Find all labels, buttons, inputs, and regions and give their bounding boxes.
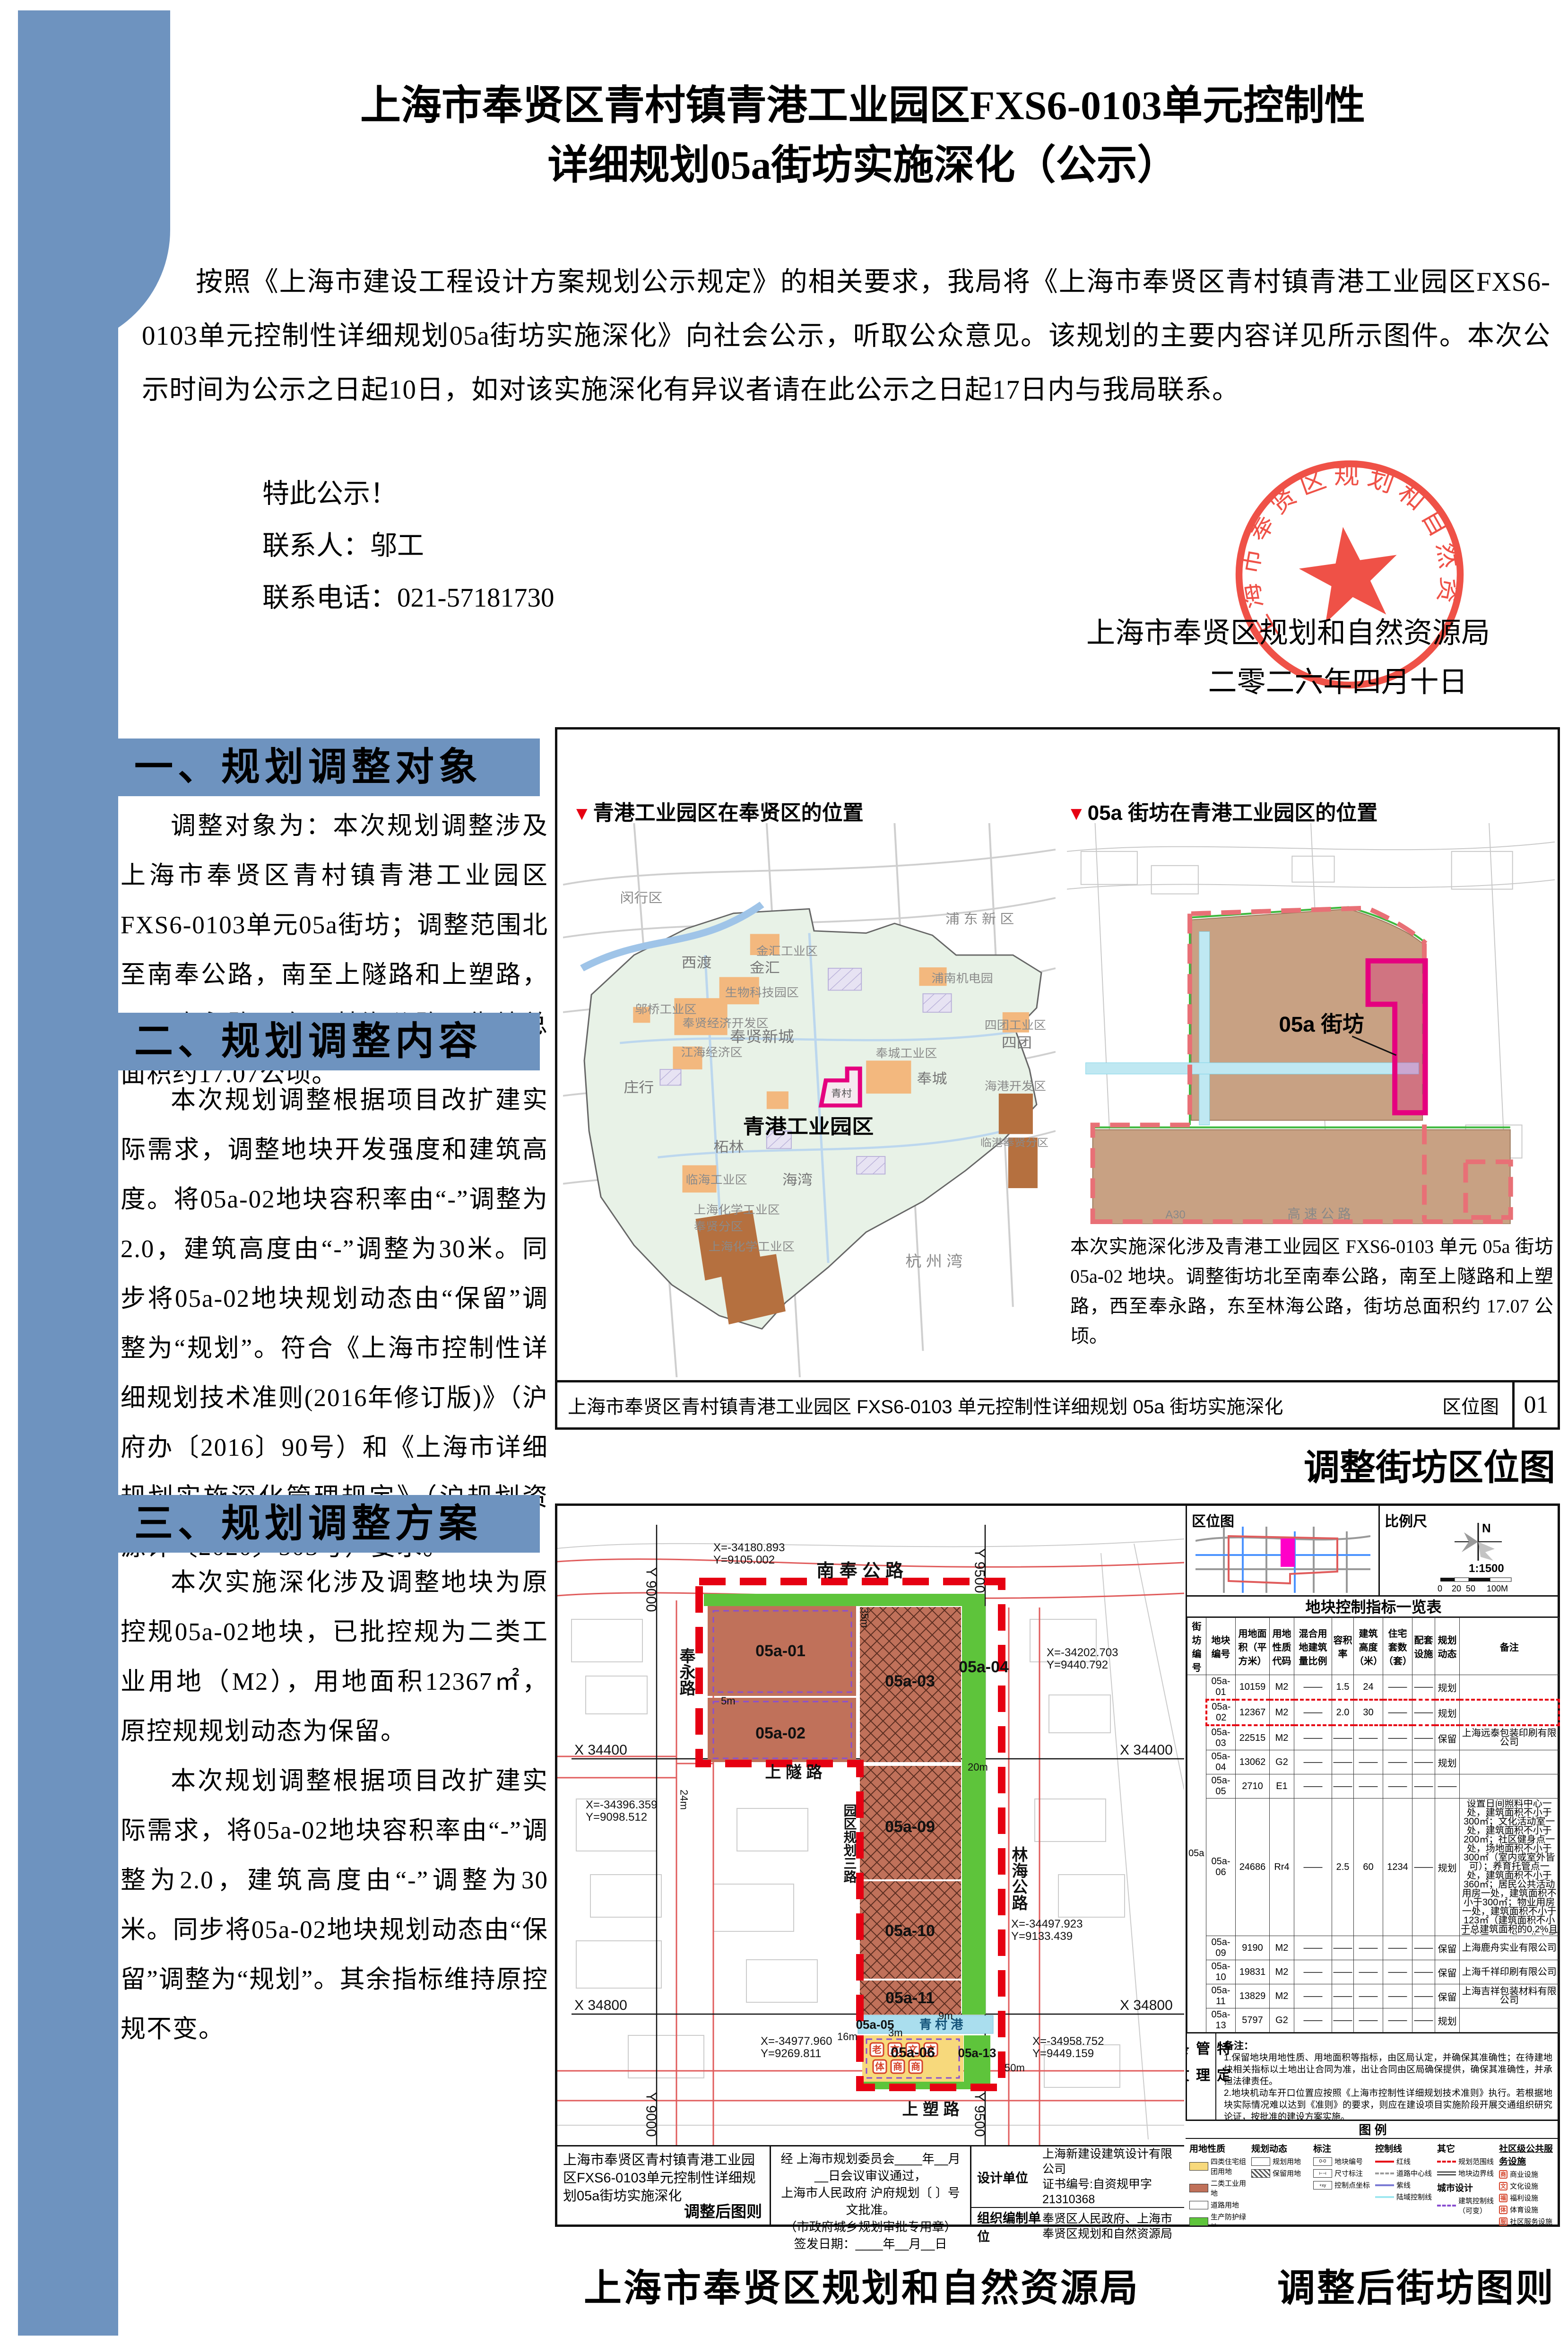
map1-caption: 调整街坊区位图: [1182, 1438, 1555, 1490]
coord-symbol: +xy: [1313, 2181, 1332, 2190]
scale-tick: 20: [1452, 1584, 1461, 1593]
legend-group-title: 其它: [1437, 2142, 1494, 2155]
cell: 保留: [1435, 1725, 1460, 1750]
cell: 60: [1354, 1799, 1383, 1936]
facility-icon: 商: [893, 2061, 902, 2072]
swatch-s1: [1189, 2201, 1208, 2209]
legend-label: 二类工业用地: [1211, 2178, 1247, 2198]
cell: ——: [1294, 1725, 1332, 1750]
table-row: 05a-1113829M2——————————保留上海吉祥包装材料有限公司: [1187, 1984, 1559, 2008]
map-label: 庄行: [624, 1079, 654, 1095]
coord-callout: X=-34202.703: [1047, 1646, 1118, 1659]
cell: 19831: [1236, 1960, 1270, 1984]
map1-caption-left: ▼ 青港工业园区在奉贤区的位置: [572, 796, 864, 826]
remark-text: 设置日间照料中心一处，建筑面积不小于300㎡；文化活动室一处，建筑面积不小于20…: [1460, 1799, 1559, 1935]
culture-facility-icon: 文: [1499, 2182, 1507, 2190]
table-row-highlighted: 05a-0212367M2——2.030————规划: [1187, 1700, 1559, 1725]
cell: ——: [1383, 1960, 1412, 1984]
parcel-label: 05a-02: [755, 1724, 806, 1742]
legend-label: 陆域控制线: [1396, 2192, 1432, 2202]
map1-titlebar-sheet: 区位图: [1418, 1391, 1512, 1419]
cell: ——: [1383, 2008, 1412, 2033]
cell: ——: [1294, 1936, 1332, 1960]
table-row: 05a-0413062G2——————————规划: [1187, 1750, 1559, 1774]
parcel-id-symbol: 0-0: [1313, 2157, 1332, 2166]
legend-label: 尺寸标注: [1334, 2168, 1363, 2178]
cell: M2: [1270, 1725, 1294, 1750]
cell: ——: [1383, 1700, 1412, 1725]
cell: ——: [1383, 1750, 1412, 1774]
legend-body: 用地性质 四类住宅组团用地 二类工业用地 道路用地 生产防护绿地 水域 规划动态…: [1186, 2139, 1560, 2227]
map-label: 邬桥工业区: [635, 1003, 696, 1016]
centerline-symbol: [1375, 2172, 1394, 2174]
map-label: 奉贤分区: [694, 1220, 743, 1233]
cell: ——: [1332, 1960, 1354, 1984]
cell: ——: [1412, 1675, 1435, 1700]
map-label: 上海化学工业区: [709, 1241, 795, 1253]
grid-label: Y 9500: [972, 2092, 988, 2137]
titleblock-approval-cell: 经 上海市规划委员会____年__月__日会议审议通过， 上海市人民政府 沪府规…: [771, 2146, 971, 2225]
cell: 上海远泰包装印刷有限公司: [1460, 1725, 1559, 1750]
titleblock-sheet: 调整后图则: [684, 2203, 762, 2221]
green-buffer-top: [704, 1594, 985, 1606]
coord-callout: Y=9098.512: [586, 1811, 647, 1824]
cell: ——: [1332, 1984, 1354, 2008]
facility-icon: 商: [911, 2061, 920, 2072]
legend-label: 地块边界线: [1458, 2168, 1494, 2178]
cell: ——: [1354, 1936, 1383, 1960]
signature-date: 二零二六年四月十日: [1158, 658, 1517, 700]
special-provisions: 特定管理条文 备注： 1.保留地块用地性质、用地面积等指标，由区局认定，并确保其…: [1187, 2033, 1560, 2120]
table-row: 05a-1019831M2——————————保留上海千祥印刷有限公司: [1187, 1960, 1559, 1984]
approval-line: 上海市人民政府 沪府规划〔 〕号文批准。: [776, 2184, 965, 2218]
block-plan-map: 老 文 文 文 体 商 商 05a-01 05a-02 05a: [557, 1506, 1184, 2145]
legend-label: 文化设施: [1510, 2181, 1538, 2191]
road-label-fengyong: 奉永路: [677, 1648, 695, 1696]
cell: M2: [1270, 1936, 1294, 1960]
dim-label: 24m: [678, 1790, 690, 1810]
map-label: 金汇工业区: [756, 945, 818, 958]
cell: E1: [1270, 1774, 1294, 1799]
legend-group-title: 用地性质: [1189, 2142, 1247, 2155]
grid-label: X 34400: [1120, 1742, 1173, 1758]
cell: ——: [1412, 1750, 1435, 1774]
block-05a-label: 05a 街坊: [1279, 1012, 1364, 1036]
cell: 保留: [1435, 1936, 1460, 1960]
map2-right-panel: 区位图 比例尺 N: [1186, 1506, 1560, 2120]
cell: ——: [1354, 1750, 1383, 1774]
coord-callout: Y=9133.439: [1011, 1930, 1073, 1943]
coord-callout: X=-34180.893: [713, 1541, 785, 1554]
cell: ——: [1383, 1774, 1412, 1799]
commercial-facility-icon: 商: [1499, 2170, 1507, 2179]
block-location-map: 05a 街坊 A30 高 速 公 路: [1067, 823, 1555, 1224]
legend-label: 商业设施: [1510, 2169, 1538, 2179]
design-unit-label: 设计单位: [971, 2168, 1042, 2186]
legend-label: 社区服务设施: [1510, 2216, 1552, 2226]
dim-label: 3m: [888, 2027, 903, 2039]
col-header: 用地性质代码: [1270, 1618, 1294, 1675]
map1-caption-right: ▼ 05a 街坊在青港工业园区的位置: [1067, 796, 1377, 826]
signature-org: 上海市奉贤区规划和自然资源局: [1031, 609, 1546, 651]
legend-dynamics: 规划动态 规划用地 保留用地: [1251, 2142, 1308, 2227]
grid-label: X 34800: [1120, 1998, 1173, 2013]
parcel-label: 05a-09: [885, 1818, 935, 1836]
cell: ——: [1294, 1960, 1332, 1984]
cell: 13062: [1236, 1750, 1270, 1774]
col-header: 规划动态: [1435, 1618, 1460, 1675]
buildingcontrol-symbol: [1437, 2205, 1456, 2207]
road-label-linhai: 林海公路: [1009, 1846, 1028, 1911]
org-unit-label: 组织编制单位: [971, 2208, 1042, 2245]
swatch-plan: [1251, 2157, 1270, 2166]
map2-frame: 老 文 文 文 体 商 商 05a-01 05a-02 05a: [555, 1503, 1560, 2227]
cell: [1460, 1750, 1559, 1774]
cell: ——: [1354, 1960, 1383, 1984]
coord-callout: Y=9269.811: [761, 2047, 821, 2060]
map-label: 杭 州 湾: [905, 1253, 962, 1270]
design-unit-cert: 证书编号:自资规甲字21310368: [1042, 2177, 1181, 2207]
legend-label: 生产防护绿地: [1211, 2212, 1247, 2227]
page-title: 上海市奉贤区青村镇青港工业园区FXS6-0103单元控制性 详细规划05a街坊实…: [180, 76, 1546, 195]
map-label: 海湾: [782, 1172, 813, 1188]
redline-symbol: [1375, 2161, 1394, 2163]
block-no-cell: 05a: [1187, 1675, 1206, 2033]
cell: Rr4: [1270, 1799, 1294, 1936]
map-label: 奉贤新城: [730, 1028, 794, 1045]
cell: M2: [1270, 1960, 1294, 1984]
table-title: 地块控制指标一览表: [1187, 1597, 1560, 1617]
legend-title: 图 例: [1186, 2121, 1560, 2139]
col-header: 住宅套数（套）: [1383, 1618, 1412, 1675]
legend-label: 规划用地: [1273, 2156, 1301, 2166]
qinggang-park-label: 青港工业园区: [743, 1116, 874, 1138]
map-label: 临海工业区: [685, 1174, 747, 1187]
cell: ——: [1332, 1774, 1354, 1799]
cell: 5797: [1236, 2008, 1270, 2033]
map-label: 闵行区: [620, 890, 662, 905]
map-label: 柘林: [714, 1139, 744, 1155]
parcel-label: 05a-13: [958, 2046, 996, 2060]
scale-graphics: N 1:1500 0 20 50 100M: [1384, 1523, 1554, 1594]
legend-box: 图 例 用地性质 四类住宅组团用地 二类工业用地 道路用地 生产防护绿地 水域 …: [1186, 2120, 1560, 2227]
road-label-yuanqu3: 园区规划三路: [842, 1804, 857, 1883]
cell: 规划: [1435, 2008, 1460, 2033]
scale-ratio: 1:1500: [1469, 1562, 1504, 1575]
cell: ——: [1383, 1936, 1412, 1960]
map-label: 四团工业区: [985, 1019, 1046, 1032]
cell: 24686: [1236, 1799, 1270, 1936]
map-label: 奉城工业区: [875, 1047, 937, 1060]
swatch-rr4: [1189, 2162, 1208, 2171]
cell: 05a-03: [1206, 1725, 1236, 1750]
cell: M2: [1270, 1675, 1294, 1700]
cell: ——: [1294, 1774, 1332, 1799]
cell: ——: [1332, 1936, 1354, 1960]
legend-group-title: 规划动态: [1251, 2142, 1308, 2155]
cell-remark-05a06: 设置日间照料中心一处，建筑面积不小于300㎡；文化活动室一处，建筑面积不小于20…: [1460, 1799, 1559, 1936]
cell: 2710: [1236, 1774, 1270, 1799]
left-accent-bar: [18, 10, 118, 2336]
grid-label: Y 9000: [643, 1567, 659, 1612]
expressway-name: 高 速 公 路: [1287, 1207, 1351, 1221]
inset-highlight: [1281, 1538, 1295, 1567]
notice-line: 特此公示！: [262, 468, 554, 520]
map-label: 浦 东 新 区: [945, 912, 1014, 927]
coord-callout: X=-34396.359: [586, 1799, 657, 1811]
map-label: 海港开发区: [985, 1080, 1046, 1093]
legend-annotation: 标注 0-0地块编号 ⊢⊣尺寸标注 +xy控制点坐标: [1313, 2142, 1370, 2227]
cell: 12367: [1236, 1700, 1270, 1725]
table-row: 05a-0624686Rr4——2.5601234——规划设置日间照料中心一处，…: [1187, 1799, 1559, 1936]
cell: [1460, 2008, 1559, 2033]
cell: ——: [1354, 2008, 1383, 2033]
scale-tick: 50: [1466, 1584, 1475, 1593]
dim-label: 5m: [721, 1695, 736, 1707]
cell: 24: [1354, 1675, 1383, 1700]
titleblock-project: 上海市奉贤区青村镇青港工业园区FXS6-0103单元控制性详细规划05a街坊实施…: [563, 2151, 764, 2205]
special-provisions-side-label: 特定管理条文: [1187, 2033, 1216, 2120]
approval-line: 签发日期：____年__月__日: [776, 2235, 965, 2252]
col-header: 容积率: [1332, 1618, 1354, 1675]
map-label: 江海经济区: [681, 1046, 742, 1059]
coord-callout: X=-34958.752: [1032, 2035, 1104, 2048]
cell: ——: [1294, 1700, 1332, 1725]
cell: ——: [1412, 1725, 1435, 1750]
cell: 规划: [1435, 1799, 1460, 1936]
sports-facility-icon: 体: [1499, 2206, 1507, 2214]
coord-callout: X=-34977.960: [761, 2035, 832, 2048]
road-label-nanfeng: 南 奉 公 路: [816, 1561, 904, 1581]
page-title-line2: 详细规划05a街坊实施深化（公示）: [180, 135, 1546, 195]
page-title-line1: 上海市奉贤区青村镇青港工业园区FXS6-0103单元控制性: [180, 76, 1546, 135]
cell: ——: [1383, 1725, 1412, 1750]
grid-label: X 34800: [574, 1998, 627, 2013]
cell: ——: [1412, 1984, 1435, 2008]
expressway-label: A30: [1165, 1208, 1185, 1221]
titleblock-project-cell: 上海市奉贤区青村镇青港工业园区FXS6-0103单元控制性详细规划05a街坊实施…: [557, 2146, 771, 2225]
cell: [1460, 1774, 1559, 1799]
cell: M2: [1270, 1700, 1294, 1725]
map-label: 临港奉贤分区: [980, 1137, 1048, 1148]
coord-callout: Y=9440.792: [1047, 1659, 1108, 1671]
cell: 1234: [1383, 1799, 1412, 1936]
dim-label: 9m: [938, 2010, 953, 2022]
legend-label: 规划范围线: [1458, 2156, 1494, 2166]
cell: [1460, 1675, 1559, 1700]
triangle-marker-icon: ▼: [572, 803, 591, 824]
dim-label: 20m: [968, 1761, 988, 1773]
map1-caption-left-text: 青港工业园区在奉贤区的位置: [593, 801, 864, 825]
legend-group-title: 控制线: [1375, 2142, 1432, 2155]
swatch-g2: [1189, 2217, 1208, 2226]
section1-heading: 一、规划调整对象: [118, 739, 540, 796]
cell: 保留: [1435, 1984, 1460, 2008]
contact-phone: 联系电话：021-57181730: [262, 572, 554, 624]
legend-group-title: 社区级公共服务设施: [1499, 2142, 1556, 2167]
triangle-marker-icon: ▼: [1067, 803, 1086, 824]
district-map: 闵行区 浦 东 新 区 西渡 金汇工业区 金汇 浦南机电园 生物科技园区 邬桥工…: [563, 823, 1056, 1377]
legend-label: 福利设施: [1510, 2193, 1538, 2203]
cell: 05a-13: [1206, 2008, 1236, 2033]
legend-label: 紫线: [1396, 2180, 1411, 2190]
legend-facilities: 社区级公共服务设施 商商业设施 文文化设施 福福利设施 体体育设施 服社区服务设…: [1499, 2142, 1556, 2227]
note-item: 2.地块机动车开口位置应按照《上海市控制性详细规划技术准则》执行。若根据地块实际…: [1224, 2087, 1552, 2120]
cell: 30: [1354, 1700, 1383, 1725]
cell: 规划: [1435, 1750, 1460, 1774]
parcel-label: 05a-10: [885, 1922, 935, 1940]
legend-label: 红线: [1396, 2156, 1411, 2166]
cell: ——: [1354, 1774, 1383, 1799]
map-label: 四团: [1002, 1034, 1032, 1051]
cell: ——: [1412, 1700, 1435, 1725]
cell: 05a-05: [1206, 1774, 1236, 1799]
map2-top-boxes: 区位图 比例尺 N: [1187, 1506, 1560, 1597]
cell: ——: [1412, 1799, 1435, 1936]
cell: G2: [1270, 2008, 1294, 2033]
map-label: 金汇: [750, 960, 780, 976]
section3-paragraph1: 本次实施深化涉及调整地块为原控规05a-02地块，已批控规为二类工业用地（M2）…: [121, 1558, 548, 1756]
scale-box: 比例尺 N 1:1500 0 20 50: [1380, 1506, 1560, 1595]
parcelboundary-symbol: [1437, 2172, 1456, 2175]
cell: 05a-09: [1206, 1936, 1236, 1960]
grid-label: Y 9000: [643, 2092, 659, 2137]
design-unit-value: 上海新建设建筑设计有限公司 证书编号:自资规甲字21310368: [1042, 2146, 1184, 2207]
purpleline-symbol: [1375, 2184, 1394, 2186]
section3-paragraph2: 本次规划调整根据项目改扩建实际需求，将05a-02地块容积率由“-”调整为2.0…: [121, 1756, 548, 2054]
map1-caption-right-text: 05a 街坊在青港工业园区的位置: [1088, 801, 1378, 825]
coord-callout: Y=9105.002: [713, 1554, 775, 1566]
col-header: 街坊编号: [1187, 1618, 1206, 1675]
table-row: 05a-135797G2——————————规划: [1187, 2008, 1559, 2033]
cell: 05a-02: [1206, 1700, 1236, 1725]
legend-label: 控制点坐标: [1334, 2180, 1370, 2190]
map1-note: 本次实施深化涉及青港工业园区 FXS6-0103 单元 05a 街坊 05a-0…: [1070, 1232, 1553, 1351]
cell: 1.5: [1332, 1675, 1354, 1700]
intro-paragraph: 按照《上海市建设工程设计方案规划公示规定》的相关要求，我局将《上海市奉贤区青村镇…: [142, 255, 1551, 417]
col-header: 混合用地建筑量比例: [1294, 1618, 1332, 1675]
cell: [1460, 1700, 1559, 1725]
cell: 05a-10: [1206, 1960, 1236, 1984]
coord-callout: X=-34497.923: [1011, 1918, 1083, 1930]
section3-heading: 三、规划调整方案: [118, 1495, 540, 1553]
map1-frame: ▼ 青港工业园区在奉贤区的位置 ▼ 05a 街坊在青港工业园区的位置: [555, 727, 1560, 1430]
scale-tick: 100M: [1487, 1584, 1508, 1593]
legend-label: 四类住宅组团用地: [1211, 2156, 1247, 2176]
cell: 上海鹿舟实业有限公司: [1460, 1936, 1559, 1960]
legend-controls: 控制线 红线 道路中心线 紫线 陆域控制线: [1375, 2142, 1432, 2227]
cell: ——: [1383, 1984, 1412, 2008]
org-unit-row: 组织编制单位 奉贤区人民政府、上海市奉贤区规划和自然资源局: [971, 2207, 1184, 2245]
section2-heading: 二、规划调整内容: [118, 1013, 540, 1070]
cell: 规划: [1435, 1675, 1460, 1700]
approval-line: 经 上海市规划委员会____年__月__日会议审议通过，: [776, 2150, 965, 2184]
dim-symbol: ⊢⊣: [1313, 2169, 1332, 2178]
map2-titleblock: 上海市奉贤区青村镇青港工业园区FXS6-0103单元控制性详细规划05a街坊实施…: [557, 2145, 1184, 2225]
legend-label: 道路用地: [1211, 2200, 1239, 2210]
bottom-caption-left: 上海市奉贤区规划和自然资源局: [584, 2258, 1140, 2312]
north-label: N: [1482, 1523, 1491, 1535]
cell: ——: [1332, 2008, 1354, 2033]
cell: ——: [1412, 1936, 1435, 1960]
col-header: 备注: [1460, 1618, 1559, 1675]
cell: ——: [1294, 2008, 1332, 2033]
table-row: 05a-0322515M2——————————保留上海远泰包装印刷有限公司: [1187, 1725, 1559, 1750]
col-header: 地块编号: [1206, 1618, 1236, 1675]
welfare-facility-icon: 福: [1499, 2194, 1507, 2202]
cell: 22515: [1236, 1725, 1270, 1750]
scale-tick: 0: [1438, 1584, 1442, 1593]
legend-label: 地块编号: [1334, 2156, 1363, 2166]
cell: ——: [1435, 1774, 1460, 1799]
control-index-table: 街坊编号 地块编号 用地面积（平方米） 用地性质代码 混合用地建筑量比例 容积率…: [1187, 1617, 1560, 2033]
legend-landuse: 用地性质 四类住宅组团用地 二类工业用地 道路用地 生产防护绿地 水域: [1189, 2142, 1247, 2227]
community-facility-icon: 服: [1499, 2217, 1507, 2226]
approval-line: （市政府城乡规划审批专用章）: [776, 2218, 965, 2235]
dim-label: 50m: [1005, 2062, 1025, 2074]
cell: ——: [1412, 1960, 1435, 1984]
cell: G2: [1270, 1750, 1294, 1774]
cell: 05a-01: [1206, 1675, 1236, 1700]
cell: 10159: [1236, 1675, 1270, 1700]
notes-content: 备注： 1.保留地块用地性质、用地面积等指标，由区局认定，并确保其准确性；在待建…: [1216, 2033, 1560, 2120]
cell: ——: [1294, 1984, 1332, 2008]
parcel-label: 05a-03: [885, 1672, 935, 1690]
map-label: 奉城: [917, 1071, 947, 1087]
cell: ——: [1294, 1750, 1332, 1774]
legend-group-title: 标注: [1313, 2142, 1370, 2155]
table-row: 05a-052710E1————————————: [1187, 1774, 1559, 1799]
facility-icon: 老: [872, 2044, 882, 2055]
cell: 05a-04: [1206, 1750, 1236, 1774]
legend-group-title: 城市设计: [1437, 2181, 1494, 2194]
cell: 规划: [1435, 1700, 1460, 1725]
scale-bar: [1440, 1578, 1511, 1581]
map-label: 浦南机电园: [931, 973, 993, 985]
swatch-m2: [1189, 2184, 1208, 2192]
inset-map-box: 区位图: [1187, 1506, 1380, 1595]
table-row: 05a 05a-0110159M2——1.524————规划: [1187, 1675, 1559, 1700]
cell: 上海吉祥包装材料有限公司: [1460, 1984, 1559, 2008]
road-label-shangsu: 上 塑 路: [902, 2101, 960, 2119]
cell: ——: [1354, 1725, 1383, 1750]
note-item: 1.保留地块用地性质、用地面积等指标，由区局认定，并确保其准确性；在待建地块相关…: [1224, 2052, 1552, 2087]
parcel-label: 05a-11: [885, 1989, 935, 2007]
cell: 13829: [1236, 1984, 1270, 2008]
planboundary-symbol: [1437, 2161, 1456, 2163]
cell: M2: [1270, 1984, 1294, 2008]
landline-symbol: [1375, 2196, 1394, 2198]
cell: ——: [1412, 1774, 1435, 1799]
map1-titlebar: 上海市奉贤区青村镇青港工业园区 FXS6-0103 单元控制性详细规划 05a …: [557, 1380, 1558, 1427]
dim-label: 16m: [837, 2031, 858, 2042]
cell: ——: [1383, 1675, 1412, 1700]
table-header-row: 街坊编号 地块编号 用地面积（平方米） 用地性质代码 混合用地建筑量比例 容积率…: [1187, 1618, 1559, 1675]
design-unit-row: 设计单位 上海新建设建筑设计有限公司 证书编号:自资规甲字21310368: [971, 2146, 1184, 2207]
map2-caption: 调整后街坊图则: [1149, 2258, 1555, 2312]
canal-horizontal: [1086, 1063, 1419, 1074]
legend-other: 其它 规划范围线 地块边界线 城市设计 建筑控制线（可变）: [1437, 2142, 1494, 2227]
table-row: 05a-099190M2——————————保留上海鹿舟实业有限公司: [1187, 1936, 1559, 1960]
legend-label: 建筑控制线（可变）: [1458, 2196, 1494, 2216]
parcel-label: 05a-01: [755, 1642, 806, 1660]
facility-icon: 体: [875, 2061, 885, 2072]
map1-titlebar-title: 上海市奉贤区青村镇青港工业园区 FXS6-0103 单元控制性详细规划 05a …: [557, 1391, 1418, 1419]
cell: 2.5: [1332, 1799, 1354, 1936]
road-label-shangsui: 上 隧 路: [765, 1764, 823, 1781]
parcel-label: 05a-04: [959, 1658, 1009, 1676]
cell: ——: [1294, 1675, 1332, 1700]
